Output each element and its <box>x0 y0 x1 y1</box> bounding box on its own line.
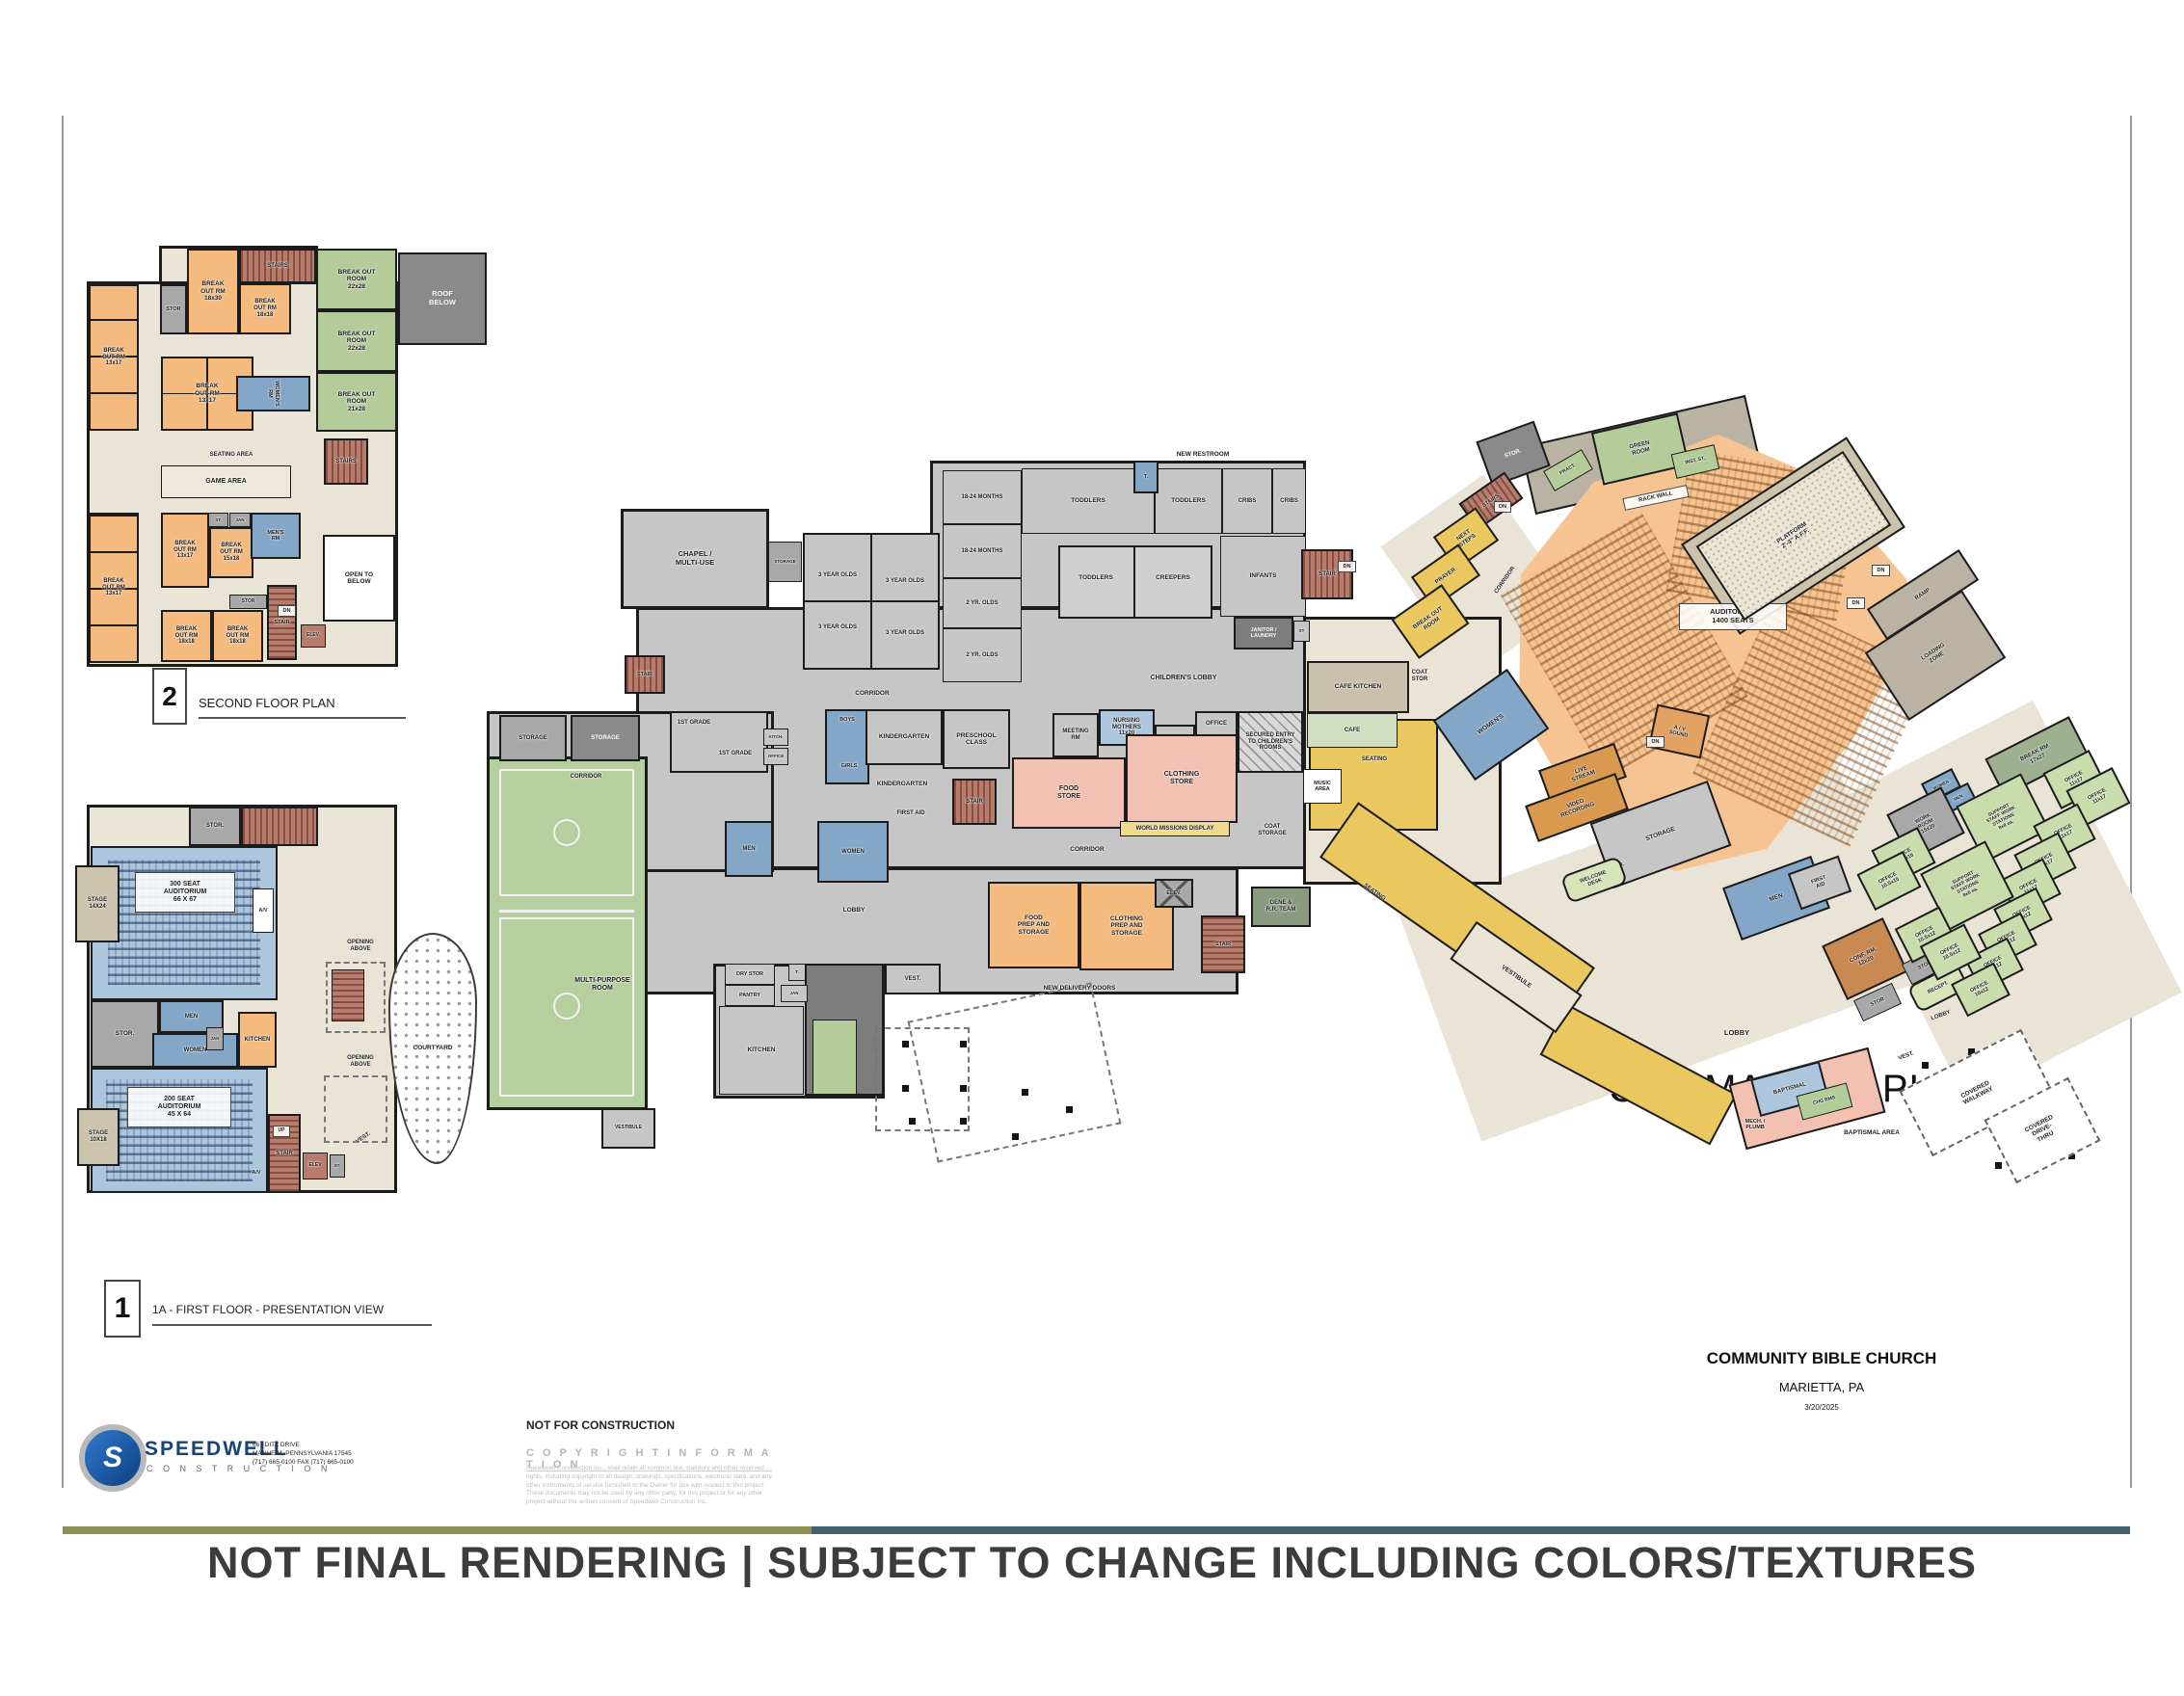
room-s_bo18b2: BREAK OUT RM 18x18 <box>212 610 263 662</box>
room-s_bo21: BREAK OUT ROOM 21x28 <box>316 372 397 432</box>
plan-shape-stairS <box>241 807 318 846</box>
room-r_mechp: MECH. / PLUMB <box>1727 1112 1783 1137</box>
room-r_music: MUSIC AREA <box>1303 769 1342 804</box>
room-f_av2: A/V <box>243 1166 270 1179</box>
plan-shape-circle <box>553 819 580 846</box>
room-r_dn_b: DN <box>1847 597 1865 609</box>
room-s_bo1518: BREAK OUT RM 15x18 <box>209 527 253 578</box>
room-f_stage300: STAGE 14X24 <box>75 865 120 942</box>
room-c_infants: INFANTS <box>1220 536 1306 617</box>
room-c_corridor_top: CORRIDOR <box>835 688 910 700</box>
room-f_stage200: STAGE 10X18 <box>77 1108 120 1166</box>
room-f_open2_lbl: OPENING ABOVE <box>333 1052 387 1072</box>
room-s_mens: MEN'S RM <box>251 513 301 559</box>
room-c_boys: BOYS <box>827 715 867 726</box>
company-address-1: 667 DITZ DRIVE <box>253 1442 300 1448</box>
room-c_18b: 18-24 MONTHS <box>943 524 1022 578</box>
room-c_delivery: NEW DELIVERY DOORS <box>1029 983 1130 994</box>
not-for-construction: NOT FOR CONSTRUCTION <box>526 1418 675 1432</box>
room-s_col2: BREAK OUT RM 13x17 <box>89 513 139 663</box>
room-c_3b: 3 YEAR OLDS <box>873 576 937 587</box>
room-f_up: UP <box>273 1126 290 1137</box>
room-c_office_sm: OFFICE <box>763 748 788 765</box>
plan-number-1: 1 <box>104 1280 141 1338</box>
company-address-3: (717) 665-0100 FAX (717) 665-0100 <box>253 1459 354 1466</box>
room-c_18a: 18-24 MONTHS <box>943 470 1022 524</box>
room-c_elev: ELEV. <box>1155 879 1193 908</box>
room-c_lobby: LOBBY <box>827 904 881 916</box>
room-c_dn_ne: DN <box>1338 561 1356 572</box>
plan-number-2: 2 <box>152 668 187 725</box>
room-c_dry: DRY STOR <box>725 964 775 985</box>
room-s_stairR: STAIRS <box>324 438 368 485</box>
room-s_bo22b: BREAK OUT ROOM 22x28 <box>316 310 397 372</box>
room-f_jan_l: JAN <box>206 1027 224 1050</box>
underline <box>152 1324 432 1326</box>
plan-shape-vline <box>62 116 64 1488</box>
copyright-body: Speedwell Construction Inc., shall retai… <box>526 1465 772 1507</box>
room-c_chapel: CHAPEL / MULTI-USE <box>621 509 769 609</box>
room-c_creepers: CREEPERS <box>1139 572 1207 584</box>
room-c_pantry: PANTRY <box>725 985 775 1006</box>
room-c_vest_gym: VESTIBULE <box>601 1108 655 1149</box>
room-c_kind_a: KINDERGARTEN <box>866 709 943 765</box>
room-s_roof: ROOF BELOW <box>398 252 487 345</box>
room-s_bo1830: BREAK OUT RM 18x30 <box>187 249 239 334</box>
room-c_3c: 3 YEAR OLDS <box>806 623 869 633</box>
room-c_men_c: MEN <box>725 821 773 877</box>
room-f_stor_mid: STOR. <box>91 1000 159 1068</box>
plan-shape-col <box>960 1041 967 1047</box>
room-s_womens: WOMEN'S RM <box>236 376 310 411</box>
room-c_meeting: MEETING RM <box>1052 713 1099 757</box>
disclaimer-banner: NOT FINAL RENDERING | SUBJECT TO CHANGE … <box>58 1538 2126 1588</box>
plan-shape-divW <box>499 910 634 913</box>
room-c_stair_c: STAIR <box>952 779 997 825</box>
room-c_girls: GIRLS <box>829 761 869 772</box>
room-c_kitch: KITCH. <box>763 729 788 746</box>
project-location: MARIETTA, PA <box>1677 1380 1966 1394</box>
room-c_cloth_store: CLOTHING STORE <box>1126 734 1238 823</box>
room-c_jan2: JAN <box>781 985 808 1002</box>
room-c_t_rr: T. <box>1133 461 1159 493</box>
plan-shape-gnp <box>812 1020 857 1095</box>
room-c_office2: OFFICE <box>1195 711 1238 736</box>
room-c_1st_b: 1ST GRADE <box>711 748 759 759</box>
room-s_bo18b1: BREAK OUT RM 18x18 <box>161 610 212 662</box>
plan-label-first-floor: 1A - FIRST FLOOR - PRESENTATION VIEW <box>152 1303 384 1316</box>
room-c_st2: ST <box>1293 621 1310 642</box>
room-f_stor_top: STOR. <box>189 807 241 846</box>
room-s_st: ST. <box>208 513 228 527</box>
room-f_kitchen_l: KITCHEN <box>238 1012 277 1068</box>
room-c_2a: 2 YR. OLDS <box>943 578 1022 628</box>
room-c_tod_b: TODDLERS <box>1155 468 1222 534</box>
room-f_elev_l: ELEV <box>303 1153 328 1179</box>
room-c_chl_lobby: CHILDREN'S LOBBY <box>1116 673 1251 684</box>
plan-shape-col <box>960 1085 967 1092</box>
room-c_stair_s: STAIR <box>1201 915 1245 973</box>
plan-shape-divV <box>1133 545 1135 619</box>
room-c_food_store: FOOD STORE <box>1012 757 1126 829</box>
room-s_col1: BREAK OUT RM 13x17 <box>89 284 139 431</box>
room-r_aud_lbl: AUDITORIUM 1400 SEATS <box>1679 603 1787 630</box>
speedwell-logo-icon: S <box>79 1424 146 1492</box>
plan-shape-col <box>1922 1062 1929 1069</box>
room-r_lobby_m: LOBBY <box>1706 1025 1768 1041</box>
project-date: 3/20/2025 <box>1677 1403 1966 1412</box>
room-c_mpr: MULTI-PURPOSE ROOM <box>559 973 646 996</box>
company-address-2: MANHEIM, PENNSYLVANIA 17545 <box>253 1450 352 1457</box>
plan-shape-divH <box>803 600 940 602</box>
plan-shape-col <box>1066 1106 1073 1113</box>
room-c_world: WORLD MISSIONS DISPLAY <box>1120 821 1230 836</box>
room-r_seating_a: SEATING <box>1345 754 1403 765</box>
room-c_new_rr: NEW RESTROOM <box>1160 449 1245 460</box>
plan-label-second-floor: SECOND FLOOR PLAN <box>199 696 335 710</box>
underline <box>199 717 406 719</box>
room-s_game: GAME AREA <box>161 465 291 498</box>
room-f_women_l: WOMEN <box>152 1033 238 1068</box>
room-s_blk2: BREAK OUT RM 13x17 <box>161 513 209 588</box>
room-s_stairs_top: STAIRS <box>239 249 316 283</box>
plan-shape-circle <box>553 993 580 1020</box>
room-s_elev: ELEV. <box>301 624 326 648</box>
room-c_food_prep: FOOD PREP AND STORAGE <box>988 882 1079 968</box>
footer-bar-olive <box>63 1526 812 1534</box>
plan-shape-stairSv <box>332 969 364 1021</box>
room-f_courtyard: COURTYARD <box>388 933 477 1164</box>
room-s_seating_lbl: SEATING AREA <box>185 449 278 461</box>
room-s_stair2: STAIR <box>267 585 297 660</box>
room-c_vest_a: VEST. <box>885 964 941 994</box>
room-c_storage_sm: STORAGE <box>768 542 802 582</box>
room-r_dn_c: DN <box>1646 736 1665 748</box>
plan-shape-col <box>1022 1089 1028 1096</box>
plan-shape-col <box>909 1118 916 1125</box>
room-c_t2: T. <box>788 964 806 981</box>
room-c_kind_b: KINDERGARTEN <box>866 779 939 790</box>
room-c_3d: 3 YEAR OLDS <box>873 628 937 639</box>
plan-shape-col <box>1012 1133 1019 1140</box>
room-r_bapt_lbl: BAPTISMAL AREA <box>1825 1127 1918 1139</box>
room-c_first_aid: FIRST AID <box>887 808 935 820</box>
room-c_2b: 2 YR. OLDS <box>943 628 1022 682</box>
room-c_cribs_a: CRIBS <box>1222 468 1272 534</box>
drawing-sheet: CBC MASTER PLAN 2 SECOND FLOOR PLAN 1 1A… <box>0 0 2184 1696</box>
room-f_st_l: ST. <box>330 1154 345 1178</box>
room-c_stair_ne: STAIR <box>1301 549 1353 599</box>
room-c_storage_a: STORAGE <box>499 715 567 761</box>
room-r_coat2: COAT STOR <box>1398 665 1442 688</box>
room-c_tod_c: TODDLERS <box>1064 572 1128 584</box>
room-s_dn: DN <box>278 605 296 617</box>
room-f_open1_lbl: OPENING ABOVE <box>333 937 387 956</box>
room-c_3a: 3 YEAR OLDS <box>806 570 869 581</box>
plan-shape-col <box>902 1041 909 1047</box>
room-f_av1: A/V <box>253 888 274 933</box>
footer-bar-slate <box>812 1526 2130 1534</box>
plan-shape-col <box>960 1118 967 1125</box>
room-c_corridor_s: CORRIDOR <box>1054 844 1120 856</box>
room-s_jan: JAN <box>229 513 251 527</box>
room-c_women_c: WOMEN <box>817 821 889 883</box>
room-s_open: OPEN TO BELOW <box>323 535 395 622</box>
room-c_1st_a: 1ST GRADE <box>671 717 717 729</box>
room-f_aud300: 300 SEAT AUDITORIUM 66 X 67 <box>135 872 235 913</box>
room-c_corridor_w: CORRIDOR <box>549 771 623 782</box>
room-c_preschool: PRESCHOOL CLASS <box>943 709 1010 769</box>
room-c_secured: SECURED ENTRY TO CHILDREN'S ROOMS <box>1238 711 1303 773</box>
room-c_cribs_b: CRIBS <box>1272 468 1306 534</box>
plan-shape-col <box>902 1085 909 1092</box>
room-s_bo22a: BREAK OUT ROOM 22x28 <box>316 249 397 310</box>
room-c_gene: GENE & R.R. TEAM <box>1251 887 1311 927</box>
room-r_cafe: CAFE <box>1307 713 1398 748</box>
room-s_stor2: STOR <box>229 595 267 609</box>
room-r_dn_a: DN <box>1872 565 1890 576</box>
room-s_stor_top: STOR <box>160 284 187 334</box>
room-c_storage_b: STORAGE <box>571 715 640 761</box>
room-c_janitor: JANITOR / LAUNDRY <box>1234 617 1293 649</box>
room-c_coat: COAT STORAGE <box>1247 819 1297 842</box>
room-s_bo1818: BREAK OUT RM 18x18 <box>239 283 291 334</box>
room-c_kitchen2: KITCHEN <box>719 1006 804 1095</box>
room-c_stair_w: STAIR <box>625 655 665 694</box>
room-r_cafe_k: CAFE KITCHEN <box>1307 661 1409 713</box>
room-r_dn1: DN <box>1494 501 1511 513</box>
room-f_aud200: 200 SEAT AUDITORIUM 45 X 64 <box>127 1087 231 1127</box>
project-name: COMMUNITY BIBLE CHURCH <box>1677 1349 1966 1368</box>
plan-shape-col <box>1995 1162 2002 1169</box>
